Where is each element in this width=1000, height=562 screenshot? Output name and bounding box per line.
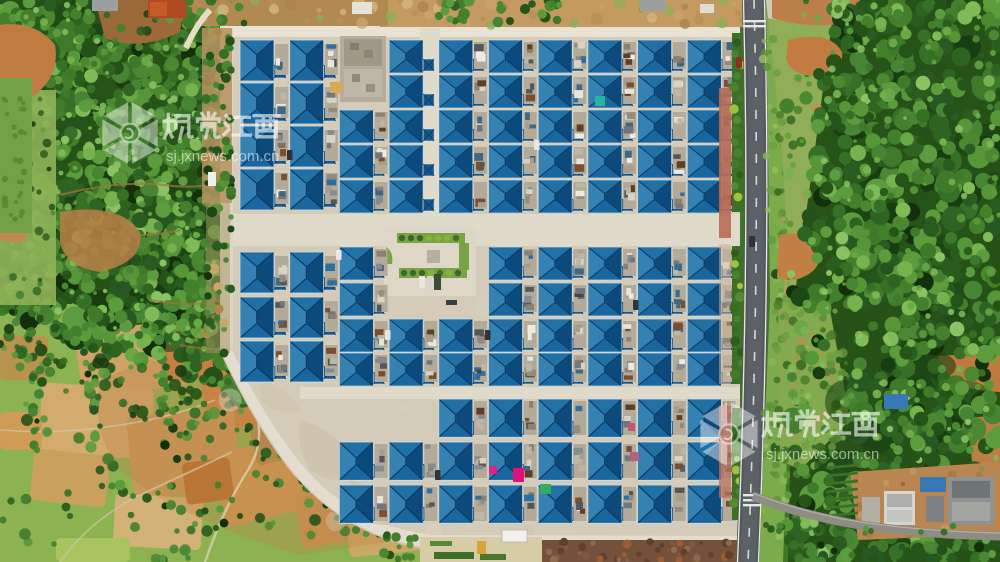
svg-text:sj.jxnews.com.cn: sj.jxnews.com.cn [166,148,279,165]
svg-text:sj.jxnews.com.cn: sj.jxnews.com.cn [766,446,879,463]
